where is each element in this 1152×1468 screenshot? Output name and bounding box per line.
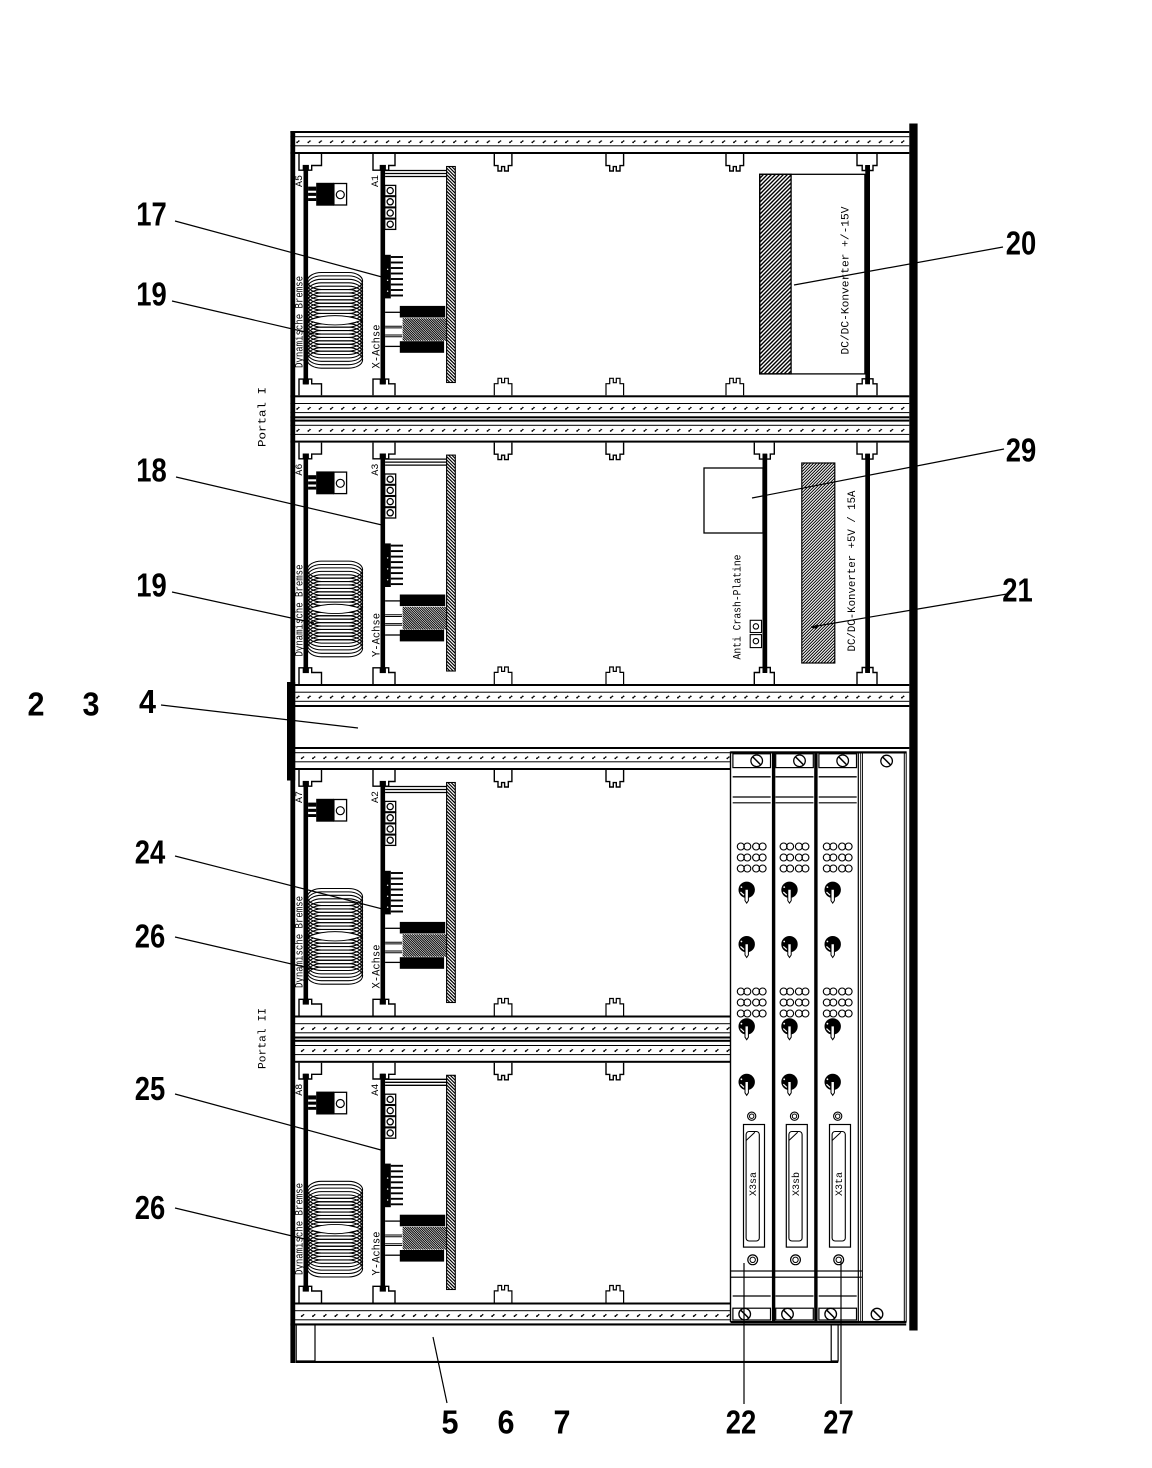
svg-text:2: 2	[28, 686, 45, 723]
svg-text:20: 20	[1006, 225, 1037, 262]
svg-text:22: 22	[726, 1404, 757, 1441]
svg-text:X3sb: X3sb	[791, 1172, 803, 1196]
svg-text:5: 5	[442, 1404, 459, 1441]
svg-text:X3sa: X3sa	[749, 1172, 760, 1196]
svg-text:6: 6	[498, 1404, 515, 1441]
svg-text:21: 21	[1002, 572, 1033, 609]
svg-text:A4: A4	[371, 1084, 382, 1096]
svg-text:Dynamische Bremse: Dynamische Bremse	[295, 896, 307, 988]
svg-text:7: 7	[554, 1404, 571, 1441]
svg-text:X-Achse: X-Achse	[372, 325, 384, 369]
svg-text:A3: A3	[371, 464, 382, 476]
svg-text:Dynamische Bremse: Dynamische Bremse	[295, 565, 307, 657]
svg-text:27: 27	[823, 1404, 854, 1441]
svg-text:19: 19	[136, 276, 167, 313]
svg-text:26: 26	[135, 1189, 166, 1226]
svg-text:DC/DC-Konverter +/-15V: DC/DC-Konverter +/-15V	[841, 206, 853, 354]
svg-text:Dynamische Bremse: Dynamische Bremse	[295, 276, 307, 368]
svg-text:18: 18	[136, 452, 167, 489]
svg-text:3: 3	[83, 686, 100, 723]
svg-text:Portal II: Portal II	[258, 1008, 270, 1069]
svg-text:X-Achse: X-Achse	[372, 945, 384, 989]
svg-text:A6: A6	[295, 464, 306, 476]
svg-text:Anti Crash-Platine: Anti Crash-Platine	[732, 555, 744, 660]
svg-text:Dynamische Bremse: Dynamische Bremse	[295, 1183, 307, 1275]
svg-text:DC/DC-Konverter +5V / 15A: DC/DC-Konverter +5V / 15A	[847, 490, 859, 651]
svg-text:29: 29	[1006, 432, 1037, 469]
svg-text:Y-Achse: Y-Achse	[372, 1232, 384, 1276]
svg-text:A1: A1	[371, 175, 382, 187]
svg-text:Y-Achse: Y-Achse	[372, 613, 384, 657]
svg-text:X3ta: X3ta	[835, 1172, 846, 1196]
svg-text:26: 26	[135, 918, 166, 955]
svg-text:25: 25	[135, 1070, 166, 1107]
svg-text:A8: A8	[295, 1084, 306, 1096]
svg-text:24: 24	[135, 833, 166, 870]
svg-text:A7: A7	[295, 791, 306, 803]
svg-text:Portal I: Portal I	[258, 387, 270, 447]
svg-text:4: 4	[139, 683, 157, 720]
svg-text:A5: A5	[295, 175, 306, 187]
svg-text:19: 19	[136, 567, 167, 604]
svg-text:17: 17	[136, 196, 167, 233]
svg-text:A2: A2	[371, 791, 382, 803]
